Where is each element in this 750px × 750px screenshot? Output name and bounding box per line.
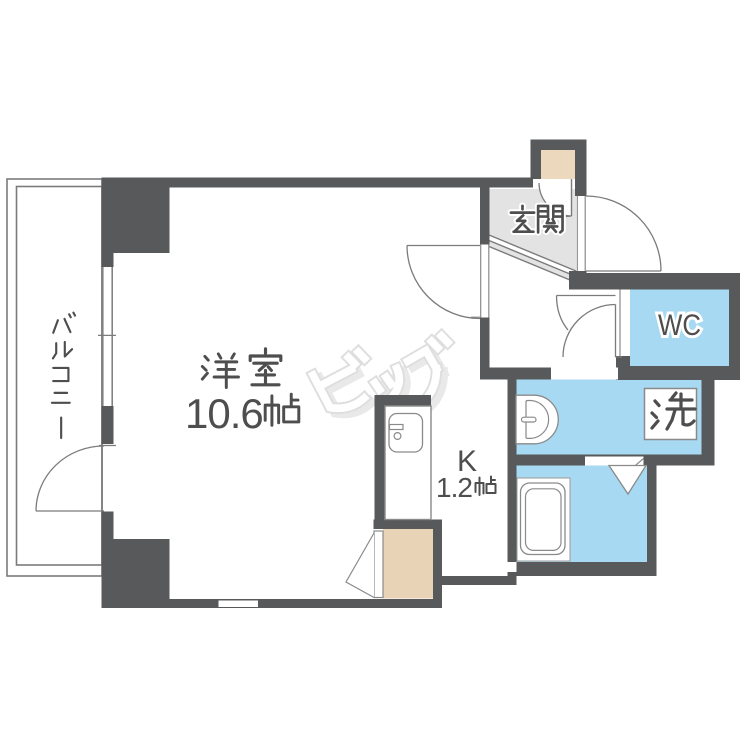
svg-text:10.6: 10.6 bbox=[185, 390, 263, 437]
svg-text:WC: WC bbox=[658, 309, 701, 342]
svg-text:1.2: 1.2 bbox=[436, 472, 472, 503]
